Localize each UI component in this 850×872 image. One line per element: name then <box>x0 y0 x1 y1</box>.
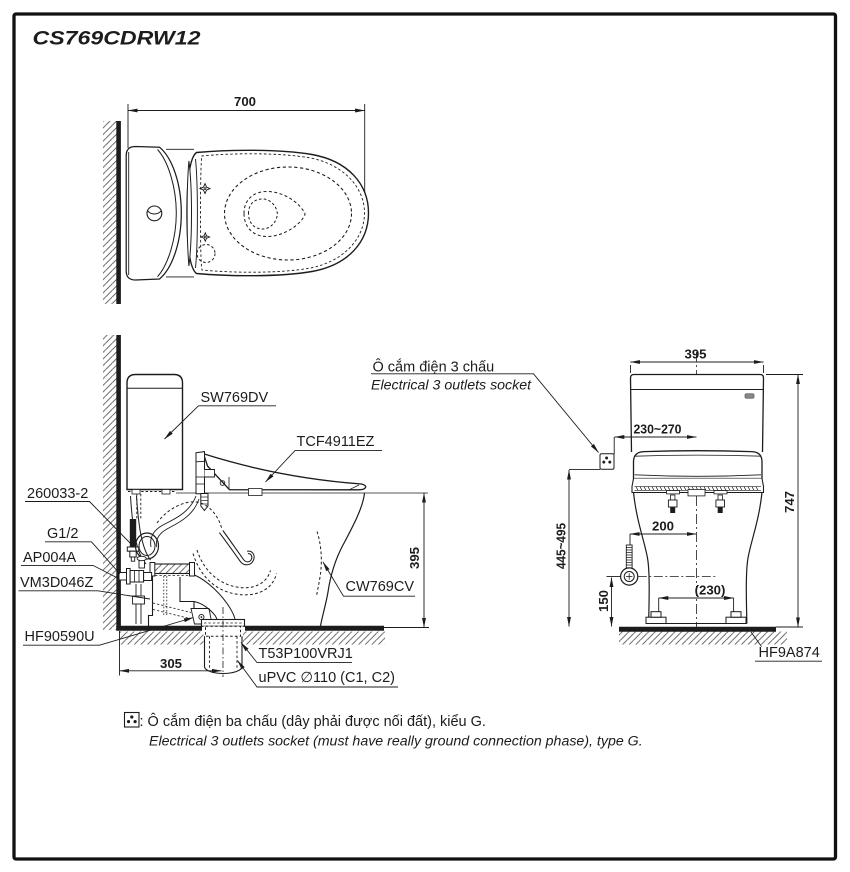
svg-text:150: 150 <box>596 590 611 612</box>
svg-text:445~495: 445~495 <box>553 523 568 569</box>
svg-text:uPVC ∅110 (C1, C2): uPVC ∅110 (C1, C2) <box>259 670 395 686</box>
svg-text:TCF4911EZ: TCF4911EZ <box>297 434 375 450</box>
svg-text:VM3D046Z: VM3D046Z <box>20 575 93 591</box>
svg-text:395: 395 <box>407 547 422 569</box>
svg-text:T53P100VRJ1: T53P100VRJ1 <box>259 646 353 662</box>
svg-text:G1/2: G1/2 <box>47 526 78 542</box>
svg-text:(230): (230) <box>695 583 726 598</box>
svg-text:Electrical 3 outlets socket: Electrical 3 outlets socket <box>371 378 532 394</box>
svg-text:230~270: 230~270 <box>634 422 682 437</box>
svg-text:SW769DV: SW769DV <box>201 390 269 406</box>
svg-text:CS769CDRW12: CS769CDRW12 <box>33 28 201 50</box>
svg-text:260033-2: 260033-2 <box>27 486 88 502</box>
svg-text:: Ô cắm điện ba chấu (dây phải: : Ô cắm điện ba chấu (dây phải được nối … <box>140 713 486 730</box>
svg-text:305: 305 <box>160 656 182 671</box>
svg-text:Ô cắm điện 3 chấu: Ô cắm điện 3 chấu <box>373 359 495 376</box>
svg-text:395: 395 <box>684 347 706 362</box>
svg-text:HF90590U: HF90590U <box>25 629 95 645</box>
svg-text:HF9A874: HF9A874 <box>759 645 820 661</box>
svg-text:AP004A: AP004A <box>23 550 77 566</box>
svg-text:200: 200 <box>652 519 674 534</box>
svg-text:CW769CV: CW769CV <box>346 579 415 595</box>
svg-text:Electrical 3 outlets socket (m: Electrical 3 outlets socket (must have r… <box>149 734 643 750</box>
svg-text:700: 700 <box>234 94 256 109</box>
svg-text:747: 747 <box>782 491 797 513</box>
